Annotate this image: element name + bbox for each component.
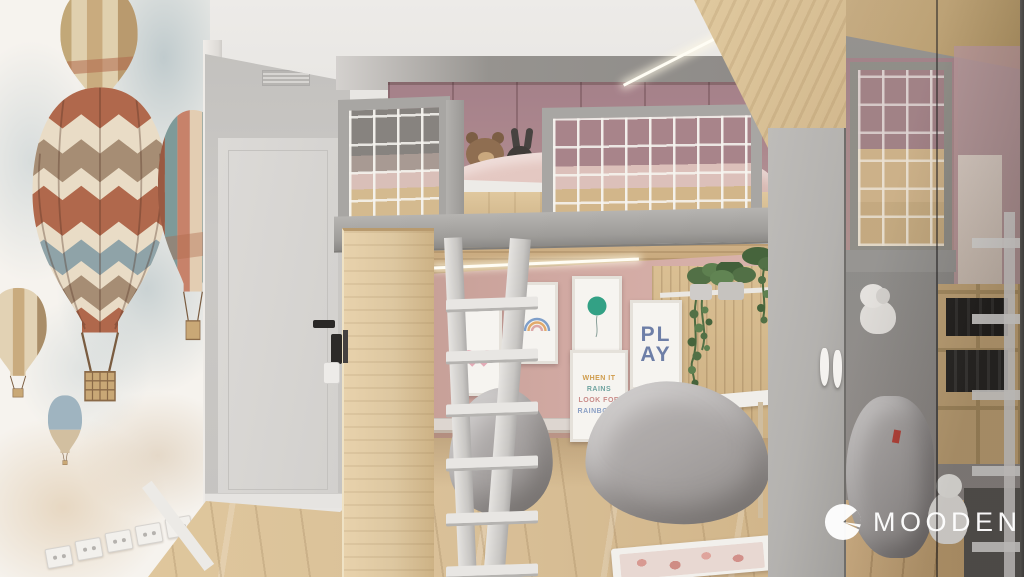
wall-outlet [104, 529, 133, 553]
mooden-logo-icon [824, 503, 862, 541]
play-poster: PL AY [630, 300, 682, 390]
hot-air-balloon-tan-illustration [0, 286, 50, 408]
wardrobe-handle [820, 348, 829, 386]
shelf-cup [323, 362, 340, 384]
hot-air-balloon-blue-illustration [46, 394, 84, 474]
wardrobe [694, 0, 1024, 577]
wall-outlet [44, 545, 73, 569]
balloon-icon [586, 295, 608, 343]
ladder-rung [446, 510, 538, 526]
wall-outlet [74, 537, 103, 561]
wardrobe-mirror [846, 0, 1024, 577]
ladder-rung [446, 563, 538, 577]
entry-wall [205, 48, 350, 508]
shelf-bottle [343, 330, 348, 363]
wardrobe-handle [833, 350, 842, 388]
balloon-mural-wall [0, 0, 210, 577]
play-letters: PL [641, 325, 672, 345]
quote-line: RAINS [587, 385, 611, 396]
quote-line: WHEN IT [582, 374, 615, 385]
hot-air-balloon-striped-illustration [154, 106, 210, 358]
rainbow-icon [522, 315, 552, 332]
play-letters: AY [640, 345, 671, 365]
shelf-bottle [331, 334, 342, 364]
mooden-logo: MOODEN [824, 498, 1022, 546]
wood-column-cabinet [342, 228, 434, 577]
mooden-logo-text: MOODEN [873, 507, 1022, 538]
mirror-glass-sheen [846, 0, 1024, 577]
wall-outlet [134, 522, 163, 546]
kids-room-render: WHEN IT RAINS LOOK FOR RAINBOWS PL AY [0, 0, 1024, 577]
